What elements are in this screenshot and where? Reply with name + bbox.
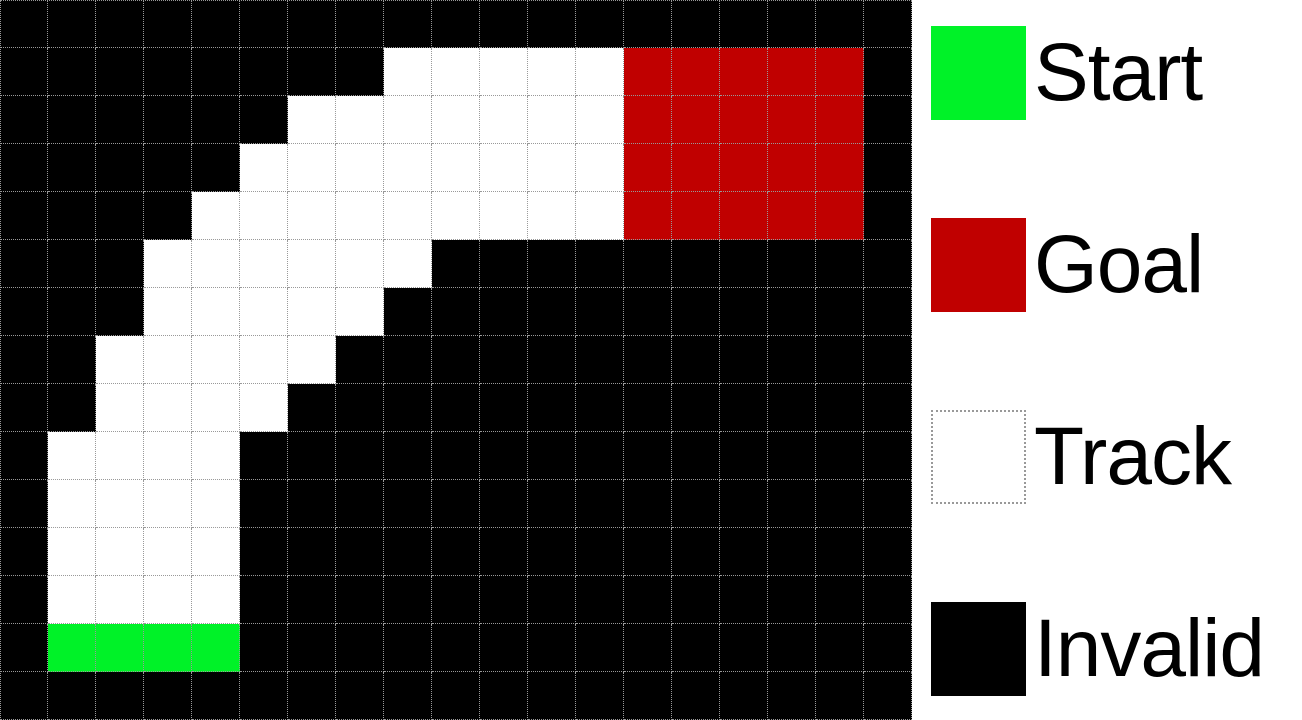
grid-cell-invalid	[720, 288, 768, 336]
grid-cell-track	[192, 288, 240, 336]
grid-cell-invalid	[720, 528, 768, 576]
grid-cell-invalid	[288, 480, 336, 528]
grid-cell-invalid	[528, 384, 576, 432]
grid-cell-track	[192, 240, 240, 288]
grid-cell-invalid	[576, 288, 624, 336]
grid-cell-invalid	[0, 192, 48, 240]
grid-cell-invalid	[624, 528, 672, 576]
grid-cell-track	[480, 192, 528, 240]
grid-cell-invalid	[96, 192, 144, 240]
grid-cell-invalid	[768, 480, 816, 528]
grid-cell-goal	[768, 144, 816, 192]
grid-cell-invalid	[432, 672, 480, 720]
grid-cell-invalid	[528, 480, 576, 528]
grid-cell-invalid	[480, 384, 528, 432]
grid-cell-invalid	[336, 0, 384, 48]
grid-cell-invalid	[48, 96, 96, 144]
grid-cell-start	[48, 624, 96, 672]
grid-cell-invalid	[672, 576, 720, 624]
grid-cell-track	[144, 576, 192, 624]
grid-cell-invalid	[144, 672, 192, 720]
grid-cell-invalid	[624, 432, 672, 480]
grid-cell-invalid	[0, 672, 48, 720]
grid-cell-track	[144, 240, 192, 288]
grid-cell-track	[528, 96, 576, 144]
grid-cell-invalid	[0, 528, 48, 576]
grid-cell-invalid	[672, 0, 720, 48]
grid-cell-track	[384, 96, 432, 144]
grid-cell-invalid	[144, 192, 192, 240]
grid-cell-invalid	[432, 432, 480, 480]
grid-cell-invalid	[0, 96, 48, 144]
grid-cell-invalid	[0, 288, 48, 336]
grid-cell-invalid	[720, 480, 768, 528]
grid-cell-invalid	[288, 48, 336, 96]
grid-cell-track	[384, 48, 432, 96]
grid-cell-invalid	[864, 144, 912, 192]
grid-cell-goal	[720, 96, 768, 144]
grid-cell-goal	[816, 96, 864, 144]
grid-cell-invalid	[48, 288, 96, 336]
grid-cell-invalid	[240, 672, 288, 720]
grid-cell-track	[48, 480, 96, 528]
grid-cell-invalid	[288, 624, 336, 672]
grid-cell-invalid	[432, 336, 480, 384]
grid-cell-goal	[672, 192, 720, 240]
grid-cell-invalid	[720, 576, 768, 624]
grid-cell-invalid	[864, 576, 912, 624]
grid-cell-invalid	[480, 480, 528, 528]
grid-cell-track	[432, 144, 480, 192]
grid-cell-track	[480, 144, 528, 192]
grid-cell-goal	[816, 192, 864, 240]
grid-cell-invalid	[720, 432, 768, 480]
grid-cell-invalid	[576, 240, 624, 288]
grid-cell-invalid	[0, 48, 48, 96]
grid-cell-invalid	[192, 672, 240, 720]
grid-cell-invalid	[144, 96, 192, 144]
grid-cell-invalid	[432, 528, 480, 576]
grid-cell-goal	[720, 144, 768, 192]
grid-cell-invalid	[624, 576, 672, 624]
grid-cell-track	[192, 480, 240, 528]
legend-item-goal: Goal	[931, 218, 1203, 312]
grid-cell-invalid	[624, 0, 672, 48]
grid-cell-invalid	[48, 144, 96, 192]
grid-cell-invalid	[96, 96, 144, 144]
grid-cell-invalid	[336, 384, 384, 432]
grid-cell-invalid	[288, 528, 336, 576]
grid-cell-invalid	[48, 240, 96, 288]
grid-cell-track	[288, 240, 336, 288]
grid-cell-invalid	[48, 384, 96, 432]
grid-cell-invalid	[48, 336, 96, 384]
grid-cell-track	[48, 528, 96, 576]
grid-cell-invalid	[768, 528, 816, 576]
grid-cell-invalid	[864, 528, 912, 576]
track-swatch	[931, 410, 1026, 504]
grid-cell-invalid	[432, 576, 480, 624]
grid-cell-invalid	[864, 96, 912, 144]
grid-cell-track	[240, 384, 288, 432]
grid-cell-invalid	[96, 144, 144, 192]
grid-cell-goal	[720, 192, 768, 240]
grid-cell-invalid	[528, 672, 576, 720]
grid-cell-track	[480, 96, 528, 144]
grid-cell-invalid	[624, 384, 672, 432]
grid-cell-invalid	[336, 480, 384, 528]
grid-cell-invalid	[480, 624, 528, 672]
grid-cell-invalid	[288, 672, 336, 720]
grid-cell-invalid	[768, 624, 816, 672]
grid-cell-invalid	[576, 384, 624, 432]
grid-cell-invalid	[576, 528, 624, 576]
grid-cell-invalid	[336, 672, 384, 720]
grid-cell-invalid	[48, 192, 96, 240]
grid-cell-invalid	[240, 432, 288, 480]
grid-cell-invalid	[240, 480, 288, 528]
grid-cell-invalid	[0, 384, 48, 432]
grid-cell-start	[96, 624, 144, 672]
grid-cell-invalid	[480, 240, 528, 288]
grid-cell-goal	[624, 144, 672, 192]
grid-cell-invalid	[816, 672, 864, 720]
grid-cell-track	[96, 528, 144, 576]
grid-cell-invalid	[816, 432, 864, 480]
grid-cell-track	[576, 192, 624, 240]
legend-item-invalid: Invalid	[931, 602, 1264, 696]
grid-cell-invalid	[864, 336, 912, 384]
grid-cell-invalid	[816, 240, 864, 288]
grid-cell-invalid	[768, 576, 816, 624]
grid-cell-track	[144, 528, 192, 576]
grid-cell-track	[576, 144, 624, 192]
grid-cell-goal	[768, 48, 816, 96]
grid-cell-invalid	[384, 576, 432, 624]
grid-cell-invalid	[384, 288, 432, 336]
grid-cell-invalid	[816, 336, 864, 384]
grid-cell-invalid	[96, 672, 144, 720]
grid-cell-invalid	[624, 672, 672, 720]
grid-cell-invalid	[576, 672, 624, 720]
grid-cell-invalid	[384, 624, 432, 672]
grid-cell-invalid	[816, 288, 864, 336]
grid-cell-track	[192, 576, 240, 624]
legend: Start Goal Track Invalid	[912, 0, 1302, 720]
grid-cell-track	[240, 192, 288, 240]
grid-cell-invalid	[624, 624, 672, 672]
grid-cell-invalid	[336, 528, 384, 576]
grid-cell-invalid	[864, 192, 912, 240]
grid-cell-start	[144, 624, 192, 672]
grid-cell-invalid	[480, 672, 528, 720]
grid-cell-goal	[816, 144, 864, 192]
grid-cell-track	[528, 48, 576, 96]
grid-cell-invalid	[528, 288, 576, 336]
grid-cell-track	[528, 192, 576, 240]
grid-cell-invalid	[384, 480, 432, 528]
grid-cell-track	[336, 144, 384, 192]
grid-cell-invalid	[432, 0, 480, 48]
grid-cell-track	[576, 96, 624, 144]
grid-cell-invalid	[672, 384, 720, 432]
grid-cell-track	[336, 240, 384, 288]
grid-cell-track	[288, 288, 336, 336]
grid-cell-track	[432, 96, 480, 144]
grid-cell-invalid	[192, 48, 240, 96]
grid-cell-invalid	[240, 576, 288, 624]
grid-cell-invalid	[480, 528, 528, 576]
grid-cell-invalid	[336, 576, 384, 624]
racetrack-grid	[0, 0, 912, 720]
grid-cell-invalid	[48, 672, 96, 720]
grid-cell-track	[384, 192, 432, 240]
goal-swatch	[931, 218, 1026, 312]
grid-cell-track	[192, 432, 240, 480]
grid-cell-track	[288, 96, 336, 144]
grid-cell-invalid	[720, 672, 768, 720]
grid-cell-start	[192, 624, 240, 672]
grid-cell-invalid	[336, 432, 384, 480]
legend-label-goal: Goal	[1034, 224, 1203, 306]
grid-cell-invalid	[816, 624, 864, 672]
grid-cell-invalid	[480, 576, 528, 624]
grid-cell-invalid	[48, 0, 96, 48]
grid-cell-invalid	[432, 288, 480, 336]
grid-cell-invalid	[576, 432, 624, 480]
grid-cell-invalid	[864, 384, 912, 432]
invalid-swatch	[931, 602, 1026, 696]
grid-cell-track	[528, 144, 576, 192]
grid-cell-invalid	[48, 48, 96, 96]
grid-cell-invalid	[864, 288, 912, 336]
grid-cell-invalid	[0, 624, 48, 672]
grid-cell-invalid	[672, 624, 720, 672]
grid-cell-invalid	[768, 288, 816, 336]
grid-cell-track	[96, 432, 144, 480]
grid-cell-invalid	[240, 624, 288, 672]
grid-cell-invalid	[432, 384, 480, 432]
grid-cell-invalid	[720, 240, 768, 288]
grid-cell-invalid	[0, 432, 48, 480]
legend-label-invalid: Invalid	[1034, 608, 1264, 690]
grid-cell-invalid	[576, 0, 624, 48]
grid-cell-goal	[624, 96, 672, 144]
grid-cell-invalid	[528, 0, 576, 48]
grid-cell-invalid	[0, 480, 48, 528]
grid-cell-track	[336, 96, 384, 144]
grid-cell-invalid	[336, 336, 384, 384]
grid-cell-invalid	[192, 144, 240, 192]
grid-cell-invalid	[480, 0, 528, 48]
grid-cell-invalid	[288, 384, 336, 432]
grid-cell-invalid	[720, 384, 768, 432]
grid-cell-invalid	[528, 528, 576, 576]
grid-cell-invalid	[816, 384, 864, 432]
grid-cell-invalid	[768, 336, 816, 384]
grid-cell-invalid	[144, 48, 192, 96]
grid-cell-track	[144, 480, 192, 528]
grid-cell-track	[336, 288, 384, 336]
grid-cell-goal	[672, 144, 720, 192]
grid-cell-invalid	[864, 240, 912, 288]
grid-cell-invalid	[480, 288, 528, 336]
grid-cell-track	[432, 48, 480, 96]
grid-cell-invalid	[528, 576, 576, 624]
grid-cell-invalid	[192, 0, 240, 48]
grid-cell-invalid	[672, 528, 720, 576]
grid-cell-invalid	[528, 432, 576, 480]
grid-cell-invalid	[192, 96, 240, 144]
grid-cell-invalid	[288, 0, 336, 48]
grid-cell-invalid	[384, 336, 432, 384]
grid-cell-track	[96, 576, 144, 624]
grid-cell-invalid	[0, 144, 48, 192]
grid-cell-invalid	[720, 624, 768, 672]
grid-cell-goal	[672, 96, 720, 144]
grid-cell-invalid	[432, 624, 480, 672]
grid-cell-track	[48, 432, 96, 480]
grid-cell-track	[192, 192, 240, 240]
grid-cell-track	[240, 240, 288, 288]
grid-cell-invalid	[816, 576, 864, 624]
grid-cell-invalid	[0, 240, 48, 288]
grid-cell-invalid	[384, 432, 432, 480]
grid-cell-invalid	[672, 480, 720, 528]
grid-cell-track	[432, 192, 480, 240]
grid-cell-track	[96, 480, 144, 528]
legend-label-start: Start	[1034, 32, 1202, 114]
grid-cell-invalid	[768, 240, 816, 288]
grid-cell-track	[144, 384, 192, 432]
grid-cell-goal	[768, 192, 816, 240]
grid-cell-track	[384, 144, 432, 192]
racetrack-figure: Start Goal Track Invalid	[0, 0, 1302, 720]
grid-cell-invalid	[768, 432, 816, 480]
grid-cell-track	[336, 192, 384, 240]
grid-cell-invalid	[432, 240, 480, 288]
grid-cell-track	[240, 144, 288, 192]
grid-cell-invalid	[720, 336, 768, 384]
grid-cell-invalid	[816, 0, 864, 48]
grid-cell-invalid	[528, 624, 576, 672]
grid-cell-track	[240, 336, 288, 384]
grid-cell-track	[192, 336, 240, 384]
grid-cell-track	[144, 336, 192, 384]
grid-cell-invalid	[864, 432, 912, 480]
grid-cell-invalid	[576, 336, 624, 384]
grid-cell-invalid	[672, 240, 720, 288]
grid-cell-invalid	[816, 480, 864, 528]
grid-cell-invalid	[240, 96, 288, 144]
grid-cell-track	[288, 144, 336, 192]
grid-cell-goal	[672, 48, 720, 96]
grid-cell-invalid	[384, 528, 432, 576]
grid-cell-invalid	[720, 0, 768, 48]
grid-cell-invalid	[624, 240, 672, 288]
grid-cell-invalid	[528, 240, 576, 288]
grid-cell-invalid	[576, 624, 624, 672]
grid-cell-track	[384, 240, 432, 288]
grid-cell-goal	[816, 48, 864, 96]
grid-cell-invalid	[96, 240, 144, 288]
grid-cell-invalid	[240, 0, 288, 48]
grid-cell-track	[96, 384, 144, 432]
grid-cell-goal	[624, 48, 672, 96]
grid-cell-invalid	[624, 288, 672, 336]
grid-cell-track	[240, 288, 288, 336]
grid-cell-track	[480, 48, 528, 96]
grid-cell-invalid	[288, 576, 336, 624]
grid-cell-track	[144, 432, 192, 480]
grid-cell-invalid	[96, 48, 144, 96]
legend-label-track: Track	[1034, 416, 1231, 498]
grid-cell-invalid	[672, 288, 720, 336]
grid-cell-goal	[624, 192, 672, 240]
grid-cell-invalid	[672, 336, 720, 384]
grid-cell-invalid	[864, 480, 912, 528]
grid-cell-invalid	[480, 432, 528, 480]
grid-cell-invalid	[432, 480, 480, 528]
grid-cell-invalid	[576, 576, 624, 624]
grid-cell-invalid	[0, 0, 48, 48]
grid-cell-invalid	[528, 336, 576, 384]
grid-cell-invalid	[480, 336, 528, 384]
grid-cell-invalid	[864, 672, 912, 720]
legend-item-start: Start	[931, 26, 1202, 120]
start-swatch	[931, 26, 1026, 120]
grid-cell-invalid	[336, 624, 384, 672]
grid-cell-invalid	[240, 48, 288, 96]
grid-cell-track	[192, 528, 240, 576]
grid-cell-invalid	[816, 528, 864, 576]
grid-cell-invalid	[240, 528, 288, 576]
grid-cell-track	[576, 48, 624, 96]
grid-cell-invalid	[96, 0, 144, 48]
grid-cell-invalid	[336, 48, 384, 96]
grid-cell-invalid	[0, 576, 48, 624]
grid-cell-invalid	[768, 0, 816, 48]
legend-item-track: Track	[931, 410, 1231, 504]
grid-cell-invalid	[624, 480, 672, 528]
grid-cell-invalid	[864, 0, 912, 48]
grid-cell-invalid	[672, 672, 720, 720]
grid-cell-track	[96, 336, 144, 384]
grid-cell-track	[144, 288, 192, 336]
grid-cell-invalid	[384, 672, 432, 720]
grid-cell-invalid	[864, 624, 912, 672]
grid-cell-invalid	[288, 432, 336, 480]
grid-cell-goal	[768, 96, 816, 144]
grid-cell-invalid	[384, 384, 432, 432]
grid-cell-invalid	[768, 384, 816, 432]
grid-cell-invalid	[864, 48, 912, 96]
grid-cell-invalid	[576, 480, 624, 528]
grid-cell-invalid	[384, 0, 432, 48]
grid-cell-invalid	[624, 336, 672, 384]
grid-cell-invalid	[672, 432, 720, 480]
grid-cell-invalid	[0, 336, 48, 384]
grid-cell-track	[288, 192, 336, 240]
grid-cell-track	[192, 384, 240, 432]
grid-cell-invalid	[96, 288, 144, 336]
grid-cell-track	[48, 576, 96, 624]
grid-cell-track	[288, 336, 336, 384]
grid-cell-invalid	[144, 0, 192, 48]
grid-cell-invalid	[144, 144, 192, 192]
grid-cell-invalid	[768, 672, 816, 720]
grid-cell-goal	[720, 48, 768, 96]
